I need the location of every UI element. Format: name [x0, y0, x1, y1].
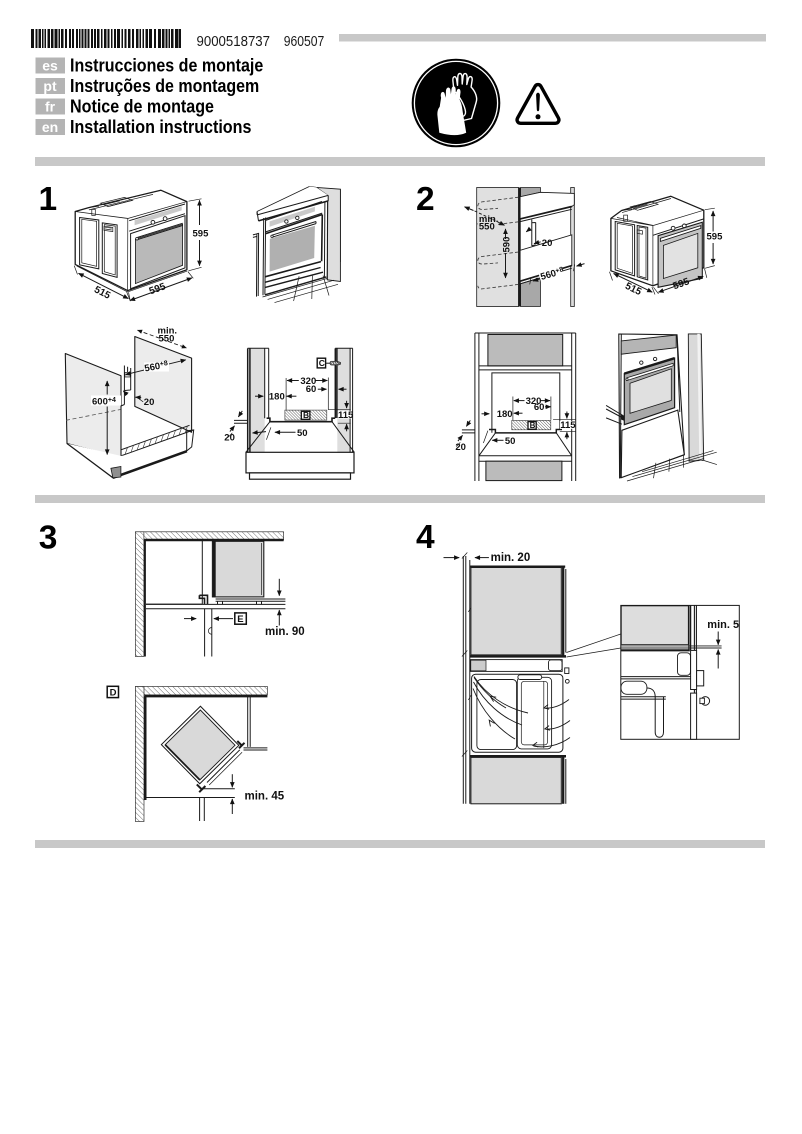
svg-text:550: 550: [159, 334, 175, 345]
svg-text:590: 590: [501, 237, 512, 253]
svg-text:20: 20: [455, 442, 466, 453]
svg-text:B: B: [530, 421, 536, 430]
svg-text:595: 595: [707, 232, 724, 243]
svg-text:en: en: [42, 119, 58, 135]
svg-text:115: 115: [338, 410, 354, 421]
svg-text:60: 60: [534, 402, 545, 413]
svg-text:4: 4: [416, 519, 435, 556]
svg-text:960507: 960507: [284, 34, 325, 50]
svg-text:60: 60: [306, 384, 317, 395]
svg-text:D: D: [110, 687, 117, 698]
svg-text:min. 20: min. 20: [491, 552, 531, 564]
svg-text:1: 1: [39, 181, 58, 218]
svg-text:Instrucciones de montaje: Instrucciones de montaje: [70, 56, 263, 76]
svg-text:180: 180: [497, 409, 513, 420]
svg-text:Notice de montage: Notice de montage: [70, 97, 214, 117]
svg-text:20: 20: [144, 397, 155, 408]
svg-text:fr: fr: [45, 99, 56, 115]
svg-text:C: C: [319, 358, 325, 368]
svg-text:2: 2: [416, 181, 435, 218]
svg-text:E: E: [237, 614, 243, 625]
svg-text:50: 50: [505, 436, 516, 447]
svg-text:50: 50: [297, 428, 308, 439]
svg-text:20: 20: [542, 238, 553, 249]
svg-text:es: es: [42, 58, 58, 74]
svg-text:Instruções de montagem: Instruções de montagem: [70, 76, 259, 96]
svg-text:20: 20: [224, 432, 235, 443]
svg-text:595: 595: [193, 229, 210, 240]
svg-text:115: 115: [560, 420, 576, 431]
svg-text:Installation instructions: Installation instructions: [70, 117, 251, 137]
svg-text:min. 45: min. 45: [245, 791, 285, 803]
svg-text:9000518737: 9000518737: [197, 34, 271, 50]
svg-text:180: 180: [269, 392, 285, 403]
svg-text:min. 90: min. 90: [265, 626, 305, 638]
svg-text:550: 550: [479, 222, 495, 233]
svg-text:B: B: [303, 410, 309, 420]
svg-text:3: 3: [39, 520, 58, 557]
svg-text:pt: pt: [43, 78, 57, 94]
svg-text:min. 5: min. 5: [707, 619, 739, 631]
